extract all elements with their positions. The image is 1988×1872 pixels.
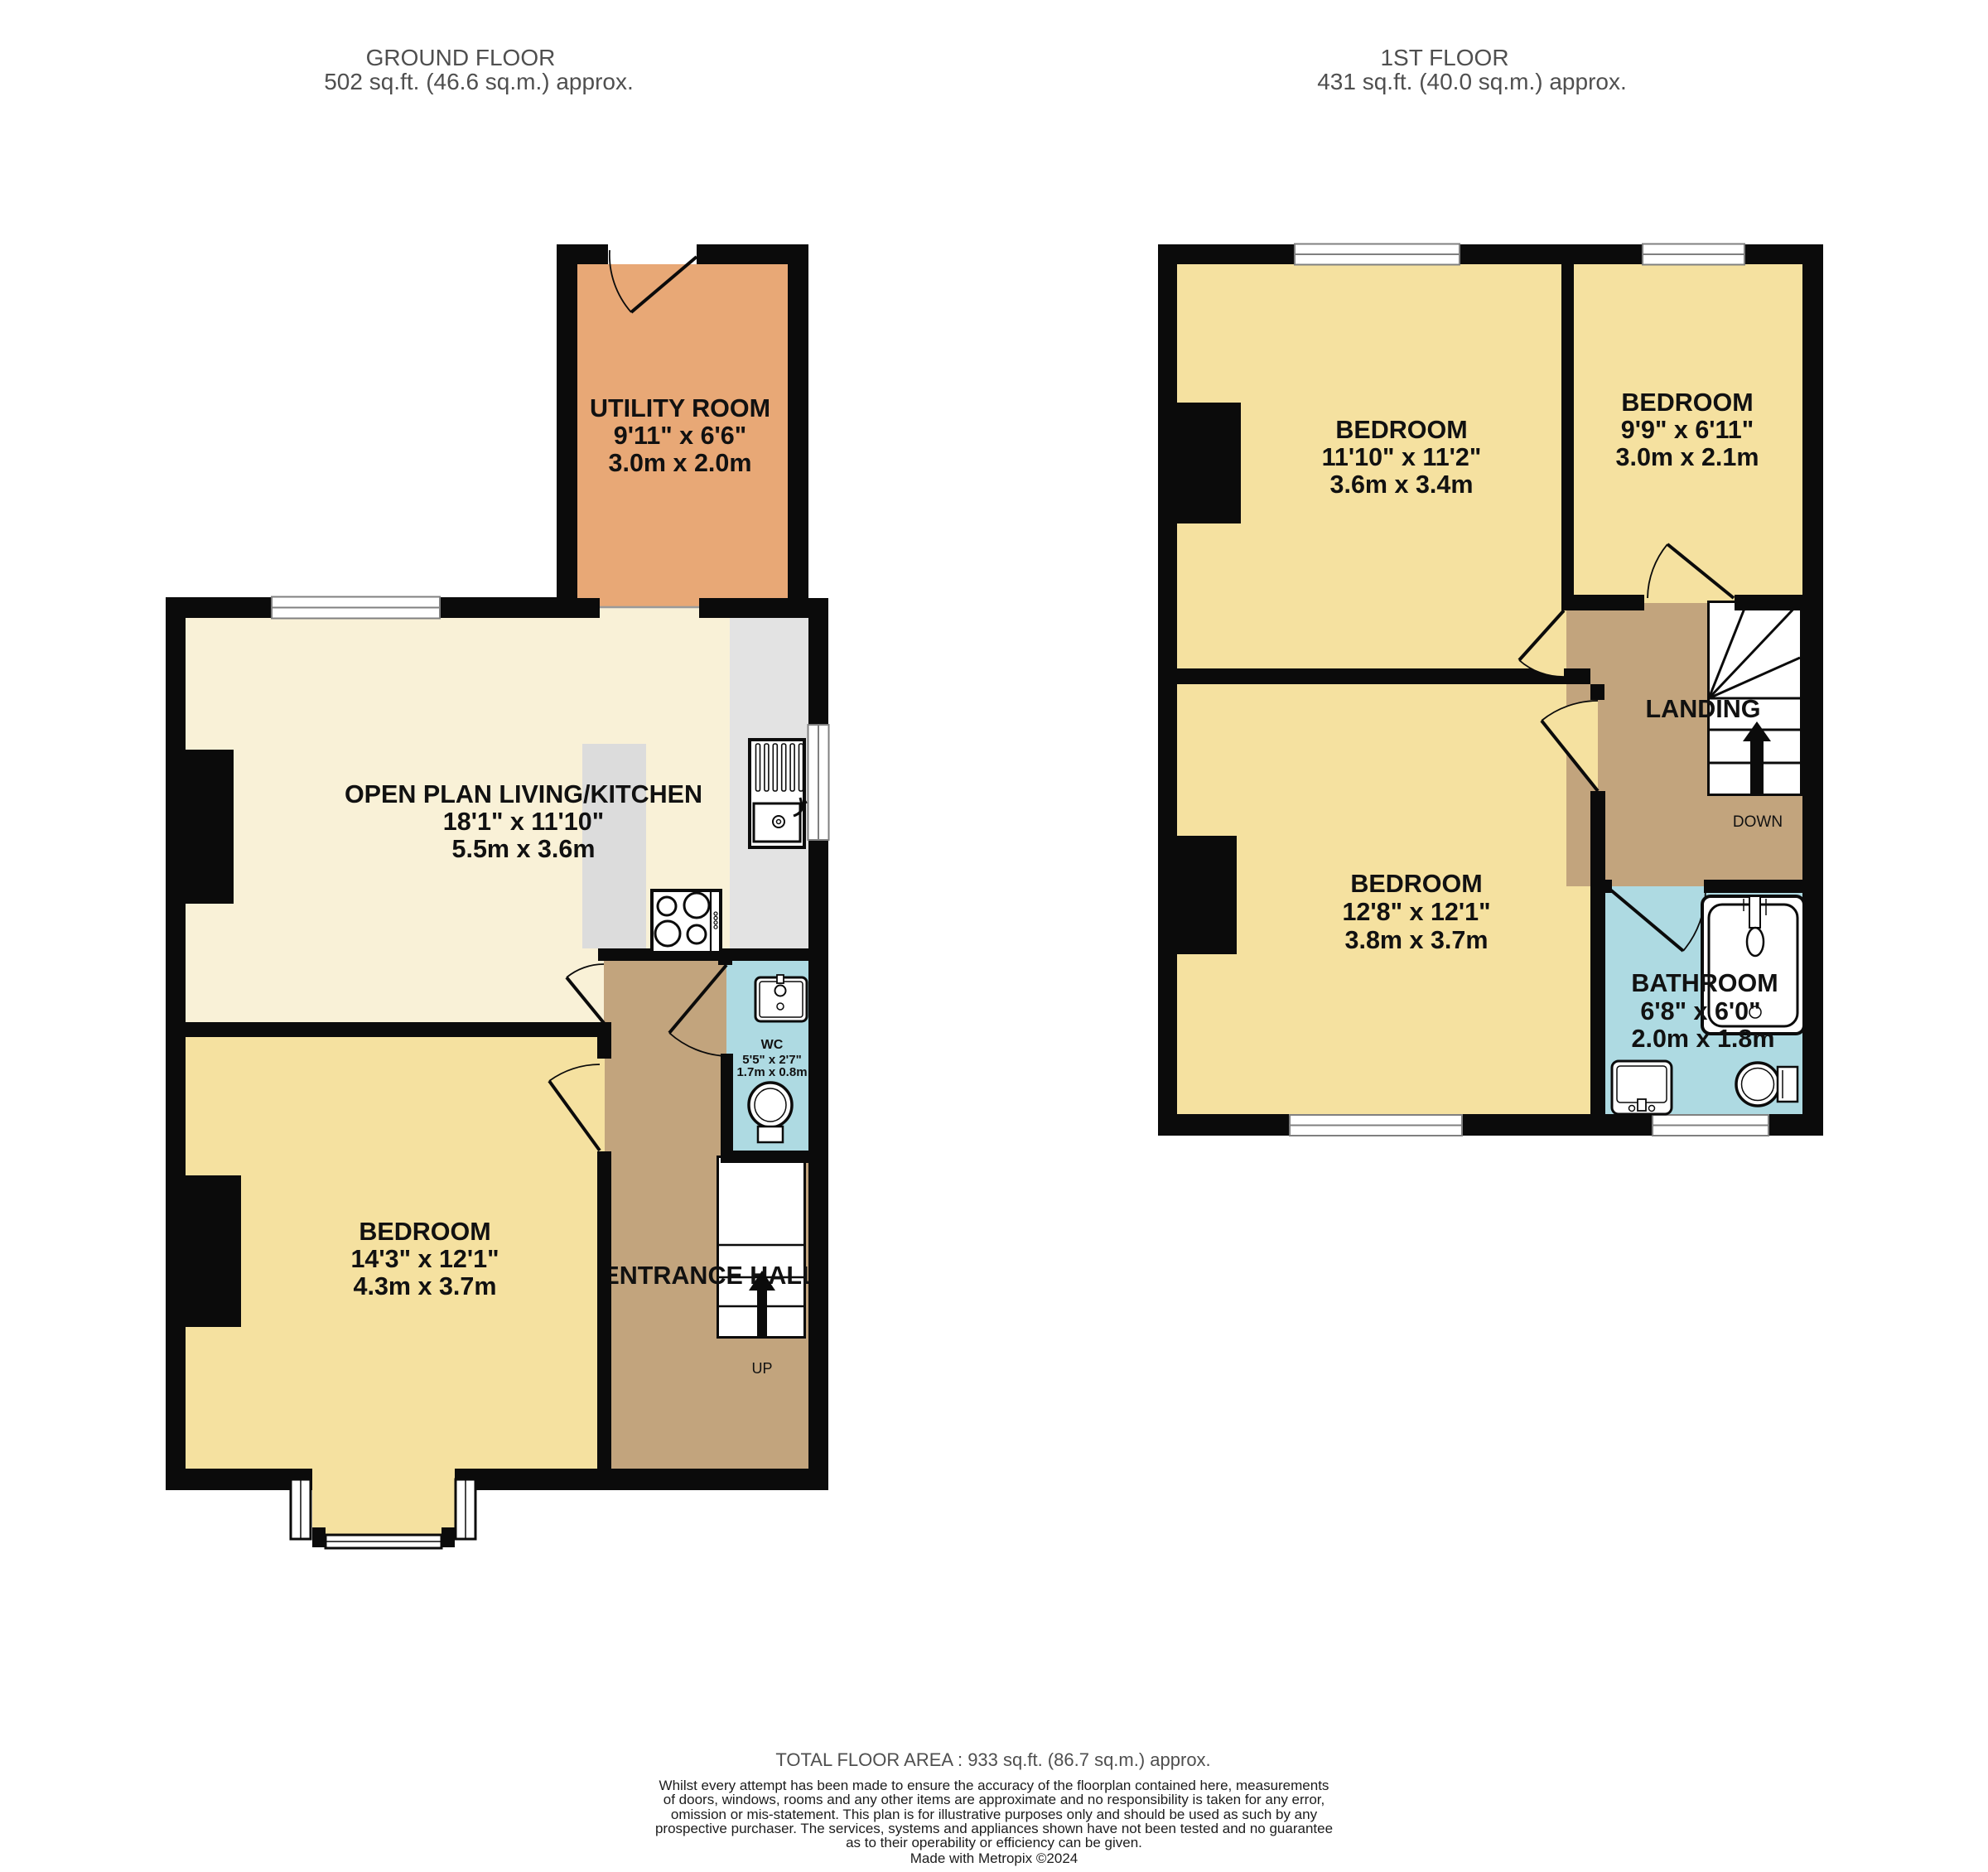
svg-text:5.5m x 3.6m: 5.5m x 3.6m (452, 835, 596, 863)
svg-text:OPEN PLAN LIVING/KITCHEN: OPEN PLAN LIVING/KITCHEN (345, 780, 702, 808)
svg-text:3.0m x 2.1m: 3.0m x 2.1m (1616, 443, 1759, 471)
svg-text:BEDROOM: BEDROOM (359, 1218, 490, 1246)
svg-text:as to their operability or eff: as to their operability or efficiency ca… (846, 1835, 1142, 1850)
svg-text:BEDROOM: BEDROOM (1621, 388, 1753, 417)
svg-text:9'9" x 6'11": 9'9" x 6'11" (1621, 416, 1754, 444)
svg-text:3.6m x 3.4m: 3.6m x 3.4m (1330, 470, 1474, 499)
svg-text:6'8" x 6'0": 6'8" x 6'0" (1640, 997, 1760, 1025)
svg-text:DOWN: DOWN (1733, 813, 1783, 831)
svg-text:BEDROOM: BEDROOM (1350, 870, 1482, 898)
svg-text:12'8" x 12'1": 12'8" x 12'1" (1342, 898, 1490, 926)
svg-text:of doors, windows, rooms and a: of doors, windows, rooms and any other i… (663, 1792, 1325, 1807)
svg-text:11'10" x 11'2": 11'10" x 11'2" (1322, 443, 1482, 471)
svg-text:4.3m x 3.7m: 4.3m x 3.7m (354, 1272, 497, 1300)
svg-text:1.7m x 0.8m: 1.7m x 0.8m (736, 1065, 807, 1079)
svg-text:3.0m x 2.0m: 3.0m x 2.0m (609, 449, 752, 477)
svg-text:1ST FLOOR: 1ST FLOOR (1380, 45, 1508, 70)
svg-text:14'3" x 12'1": 14'3" x 12'1" (350, 1245, 499, 1273)
svg-text:18'1" x 11'10": 18'1" x 11'10" (443, 808, 604, 836)
svg-text:9'11" x 6'6": 9'11" x 6'6" (614, 422, 746, 450)
svg-text:LANDING: LANDING (1646, 695, 1761, 723)
svg-text:431 sq.ft. (40.0 sq.m.) approx: 431 sq.ft. (40.0 sq.m.) approx. (1317, 69, 1627, 94)
svg-text:3.8m x 3.7m: 3.8m x 3.7m (1345, 926, 1489, 954)
svg-text:BATHROOM: BATHROOM (1631, 969, 1778, 997)
svg-text:2.0m x 1.8m: 2.0m x 1.8m (1632, 1025, 1775, 1053)
svg-text:Made with Metropix ©2024: Made with Metropix ©2024 (910, 1850, 1078, 1866)
svg-text:UP: UP (751, 1360, 772, 1377)
svg-text:GROUND FLOOR: GROUND FLOOR (366, 45, 556, 70)
svg-text:502 sq.ft. (46.6 sq.m.) approx: 502 sq.ft. (46.6 sq.m.) approx. (324, 69, 634, 94)
svg-text:BEDROOM: BEDROOM (1335, 416, 1467, 444)
svg-text:TOTAL FLOOR AREA : 933 sq.ft.: TOTAL FLOOR AREA : 933 sq.ft. (86.7 sq.m… (775, 1749, 1210, 1770)
svg-text:UTILITY ROOM: UTILITY ROOM (590, 394, 770, 422)
svg-text:ENTRANCE HALL: ENTRANCE HALL (602, 1262, 817, 1290)
svg-text:WC: WC (761, 1038, 784, 1052)
